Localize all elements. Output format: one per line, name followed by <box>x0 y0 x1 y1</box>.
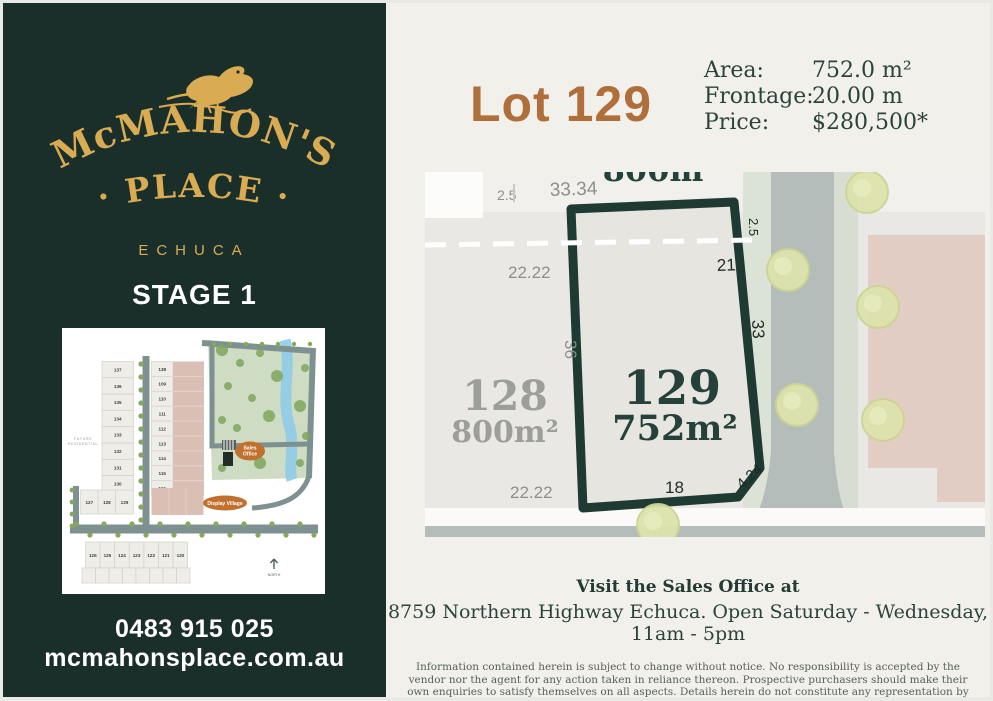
svg-text:112: 112 <box>159 426 167 431</box>
footer: Visit the Sales Office at 8759 Northern … <box>386 577 990 697</box>
minimap-display-village-badge: Display Village <box>203 496 247 511</box>
svg-text:126: 126 <box>89 553 97 558</box>
svg-text:122: 122 <box>147 553 155 558</box>
svg-text:33: 33 <box>748 319 768 339</box>
svg-text:134: 134 <box>114 416 122 421</box>
svg-text:131: 131 <box>114 465 122 470</box>
svg-text:130: 130 <box>114 482 122 487</box>
estate-minimap: 1371361351341331321311301381091101111121… <box>62 328 325 594</box>
svg-text:36: 36 <box>561 340 580 359</box>
svg-text:128: 128 <box>462 372 548 420</box>
plan-bottom-road <box>425 508 985 537</box>
main-panel: Lot 129 Area: 752.0 m² Frontage: 20.00 m… <box>386 3 990 697</box>
brand-name-arc: McMAHON'S <box>45 96 344 177</box>
plan-neighbour-lot-pink <box>868 235 985 502</box>
sidebar: McMAHON'S · PLACE · ECHUCA STAGE 1 <box>3 3 386 697</box>
svg-text:752m²: 752m² <box>612 408 737 449</box>
lot-details: Area: 752.0 m² Frontage: 20.00 m Price: … <box>704 58 954 136</box>
detail-label: Price: <box>704 110 812 136</box>
svg-text:115: 115 <box>159 471 167 476</box>
svg-text:125: 125 <box>104 553 112 558</box>
svg-text:21: 21 <box>716 255 736 275</box>
detail-value: 752.0 m² <box>812 58 954 84</box>
svg-text:128: 128 <box>103 500 111 505</box>
lot-plan: 800m² 2.5 33.34 22.22 36 128 800m² <box>425 172 985 537</box>
svg-text:110: 110 <box>159 397 167 402</box>
svg-text:132: 132 <box>114 449 122 454</box>
flyer-page: McMAHON'S · PLACE · ECHUCA STAGE 1 <box>0 0 993 701</box>
detail-value: $280,500* <box>812 110 954 136</box>
disclaimer-text: Information contained herein is subject … <box>403 661 973 697</box>
svg-text:22.22: 22.22 <box>508 263 551 282</box>
svg-text:18: 18 <box>665 478 684 497</box>
svg-text:121: 121 <box>162 553 170 558</box>
svg-text:138: 138 <box>158 367 166 372</box>
detail-row-price: Price: $280,500* <box>704 110 954 136</box>
brand-location: ECHUCA <box>138 242 249 259</box>
svg-text:114: 114 <box>159 456 167 461</box>
svg-text:FUTURE: FUTURE <box>74 437 92 441</box>
lot-plan-svg: 800m² 2.5 33.34 22.22 36 128 800m² <box>425 172 985 537</box>
brand-name-line2: · PLACE · <box>93 166 295 217</box>
svg-text:135: 135 <box>114 400 122 405</box>
svg-text:129: 129 <box>121 500 129 505</box>
website-url: mcmahonsplace.com.au <box>3 644 386 673</box>
svg-text:124: 124 <box>118 553 126 558</box>
lot-title: Lot 129 <box>441 75 681 133</box>
minimap-sales-office-badge: Sales Office <box>235 442 265 461</box>
detail-row-frontage: Frontage: 20.00 m <box>704 84 954 110</box>
svg-text:127: 127 <box>85 500 93 505</box>
svg-text:136: 136 <box>114 384 122 389</box>
minimap-creek <box>285 340 292 480</box>
svg-text:33.34: 33.34 <box>549 178 598 201</box>
svg-text:22.22: 22.22 <box>510 483 553 502</box>
svg-text:2.5: 2.5 <box>746 218 761 236</box>
lot-129-boundary <box>571 202 760 508</box>
svg-text:RESIDENTIAL: RESIDENTIAL <box>68 442 98 446</box>
svg-text:120: 120 <box>177 553 185 558</box>
svg-text:NORTH: NORTH <box>268 573 281 577</box>
brand-logo: McMAHON'S · PLACE · ECHUCA <box>39 37 349 269</box>
svg-text:123: 123 <box>133 553 141 558</box>
svg-text:109: 109 <box>158 382 166 387</box>
visit-heading: Visit the Sales Office at <box>386 577 990 597</box>
address-line: 8759 Northern Highway Echuca. Open Satur… <box>386 601 990 645</box>
detail-row-area: Area: 752.0 m² <box>704 58 954 84</box>
detail-label: Frontage: <box>704 84 812 110</box>
svg-text:· PLACE ·: · PLACE · <box>93 166 295 217</box>
svg-text:800m²: 800m² <box>451 415 559 450</box>
svg-text:111: 111 <box>159 411 167 416</box>
adjacent-lot-partial-label: 800m² <box>603 172 718 189</box>
phone-number: 0483 915 025 <box>3 615 386 644</box>
svg-text:Office: Office <box>243 452 257 458</box>
stage-title: STAGE 1 <box>3 279 386 311</box>
estate-map-card: 1371361351341331321311301381091101111121… <box>62 328 325 594</box>
svg-text:McMAHON'S: McMAHON'S <box>45 96 344 177</box>
svg-text:133: 133 <box>114 433 122 438</box>
svg-text:Display Village: Display Village <box>207 501 242 507</box>
detail-value: 20.00 m <box>812 84 954 110</box>
svg-text:113: 113 <box>159 441 167 446</box>
detail-label: Area: <box>704 58 812 84</box>
svg-text:137: 137 <box>114 367 122 372</box>
